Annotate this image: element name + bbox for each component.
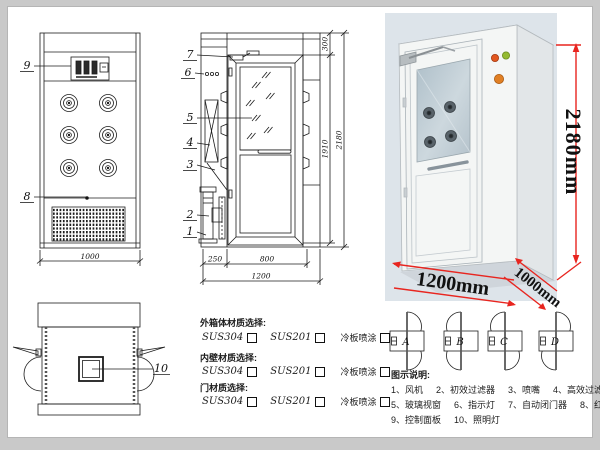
legend-item-hepa: 4、高效过滤器 [553,383,600,396]
door-material-title: 门材质选择: [200,381,248,394]
glass-hatching [246,72,275,139]
option-sus201-label: SUS201 [270,332,311,343]
callout-5-glass-window: 5 [187,111,194,124]
dim-300: 300 [321,37,330,52]
air-shower-datasheet: { "colors": { "dim_red": "#e8251f", "pho… [0,0,600,450]
nozzle-side-profiles [221,91,309,169]
callout-8-grille: 8 [24,190,31,203]
callout-10-ceiling-lamp: 10 [154,362,168,375]
callout-9-control-panel: 9 [24,59,31,72]
front-view-drawing: 1000 9 8 [20,33,143,266]
legend-item-fan: 1、风机 [391,383,423,396]
legend-item-lamp: 10、照明灯 [454,413,500,426]
door-config-c[interactable]: C [488,312,522,370]
outer-box-material-options: SUS304 SUS201 冷板喷涂 [202,331,390,344]
legend-item-control-panel: 9、控制面板 [391,413,441,426]
callout-7-door-closer: 7 [187,48,194,61]
door-with-window [228,51,303,245]
legend-item-glass-window: 5、玻璃视窗 [391,398,441,411]
legend-item-door-closer: 7、自动闭门器 [508,398,567,411]
legend-row-1: 1、风机 2、初效过滤器 3、喷嘴 4、高效过滤器 [391,383,600,396]
side-bottom-dimensions: 250 800 1200 [200,249,323,285]
outer-box-material-title: 外箱体材质选择: [200,316,266,329]
side-view-drawing: 7 6 5 4 3 2 1 250 800 [181,30,349,285]
config-c-label: C [500,337,508,348]
config-a-label: A [401,337,409,348]
option-sus304-label: SUS304 [202,396,243,407]
option-sus304-label: SUS304 [202,366,243,377]
legend-title: 图示说明: [391,368,430,381]
legend-row-2: 5、玻璃视窗 6、指示灯 7、自动闭门器 8、红外线感应器 [391,398,600,411]
top-view-drawing: 10 [13,303,170,415]
inner-wall-material-title: 内壁材质选择: [200,351,257,364]
emergency-button[interactable] [494,74,503,83]
dim-2180: 2180 [335,130,344,150]
legend-item-prefilter: 2、初效过滤器 [436,383,495,396]
sus201-checkbox[interactable] [315,367,325,377]
photo-height-dim: 2180mm [561,109,586,196]
sus304-checkbox[interactable] [247,333,257,343]
door-closer-drawing [230,51,259,60]
inner-wall-material-options: SUS304 SUS201 冷板喷涂 [202,365,390,378]
callout-4-hepa-filter: 4 [186,136,194,149]
dim-1910: 1910 [321,139,330,158]
nozzles-front [61,95,117,177]
front-width-dimension: 1000 [37,250,143,266]
door-config-d[interactable]: D [539,312,573,370]
option-sus201-label: SUS201 [270,396,311,407]
red-indicator-light [491,54,498,61]
option-coldplate-label: 冷板喷涂 [340,331,376,344]
option-sus304-label: SUS304 [202,332,243,343]
config-b-label: B [455,337,463,348]
front-width-dim-label: 1000 [80,252,99,261]
door-config-options: A B C D [390,312,573,370]
left-column-components [199,72,227,243]
product-photo: 2180mm 1200mm 1000mm [385,13,586,311]
option-sus201-label: SUS201 [270,366,311,377]
green-indicator-light [502,52,509,59]
air-return-grille [52,207,125,241]
legend-item-ir-sensor: 8、红外线感应器 [580,398,600,411]
callout-6-indicator-lights: 6 [185,66,192,79]
callout-3-nozzle: 3 [187,158,194,171]
door-config-a[interactable]: A [390,312,424,370]
side-callouts: 7 6 5 4 3 2 1 [181,48,252,238]
option-coldplate-label: 冷板喷涂 [340,395,376,408]
sus304-checkbox[interactable] [247,397,257,407]
config-d-label: D [550,337,559,348]
legend-row-3: 9、控制面板 10、照明灯 [391,413,500,426]
legend-item-nozzle: 3、喷嘴 [508,383,540,396]
dim-1200: 1200 [251,272,270,281]
coldplate-checkbox[interactable] [380,333,390,343]
option-coldplate-label: 冷板喷涂 [340,365,376,378]
sus201-checkbox[interactable] [315,333,325,343]
side-right-dimensions: 300 1910 2180 [303,30,349,250]
door-material-options: SUS304 SUS201 冷板喷涂 [202,395,390,408]
dim-250: 250 [207,255,223,264]
dim-800: 800 [260,255,275,264]
sus304-checkbox[interactable] [247,367,257,377]
callout-2-prefilter: 2 [186,208,194,221]
coldplate-checkbox[interactable] [380,397,390,407]
sus201-checkbox[interactable] [315,397,325,407]
air-shower-unit [399,25,553,280]
callout-1-fan: 1 [187,225,194,238]
legend-item-indicator: 6、指示灯 [454,398,495,411]
door-config-b[interactable]: B [444,312,478,370]
coldplate-checkbox[interactable] [380,367,390,377]
control-panel [71,57,109,80]
